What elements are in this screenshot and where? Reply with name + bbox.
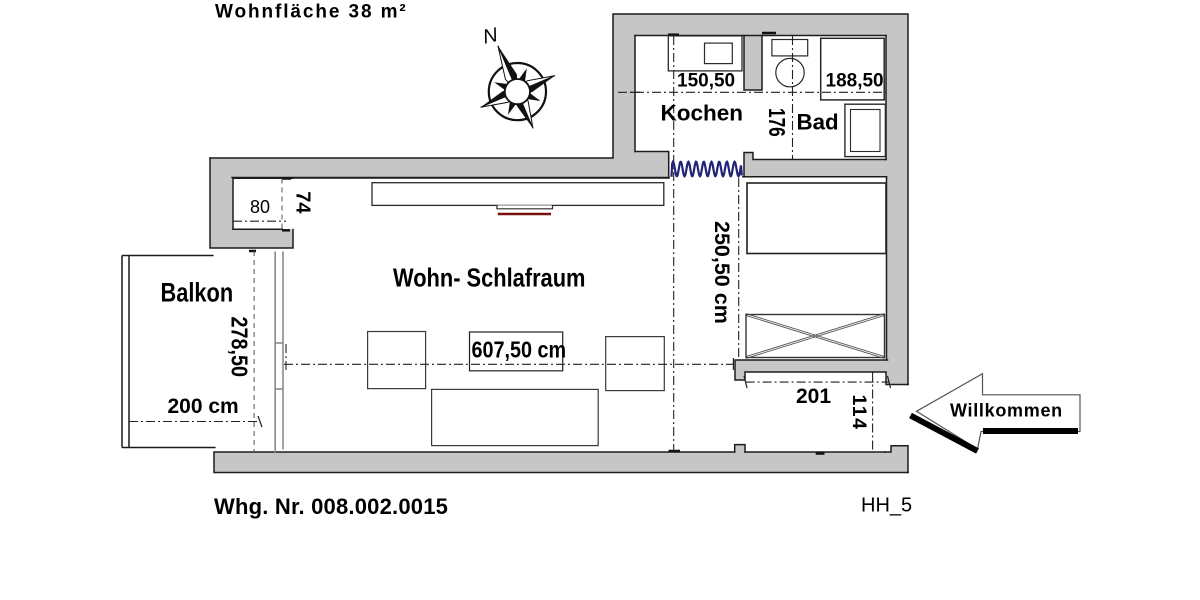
svg-text:74: 74: [292, 191, 314, 214]
svg-text:188,50: 188,50: [826, 71, 884, 92]
svg-text:80: 80: [250, 197, 270, 217]
svg-text:Balkon: Balkon: [161, 279, 234, 308]
svg-text:150,50: 150,50: [677, 71, 735, 92]
svg-text:HH_5: HH_5: [861, 495, 912, 517]
svg-text:200 cm: 200 cm: [168, 395, 239, 418]
svg-text:Kochen: Kochen: [661, 101, 744, 126]
svg-text:Whg. Nr. 008.002.0015: Whg. Nr. 008.002.0015: [214, 494, 448, 519]
svg-text:201: 201: [796, 385, 831, 408]
svg-text:Wohnfläche 38 m²: Wohnfläche 38 m²: [215, 2, 408, 23]
svg-text:607,50 cm: 607,50 cm: [472, 337, 567, 363]
svg-text:250,50 cm: 250,50 cm: [710, 221, 734, 324]
svg-text:176: 176: [763, 108, 788, 137]
svg-text:Willkommen: Willkommen: [950, 401, 1063, 421]
svg-text:Bad: Bad: [797, 110, 839, 135]
svg-text:278,50: 278,50: [226, 317, 252, 378]
svg-text:114: 114: [848, 395, 870, 431]
svg-text:Wohn- Schlafraum: Wohn- Schlafraum: [393, 264, 585, 293]
